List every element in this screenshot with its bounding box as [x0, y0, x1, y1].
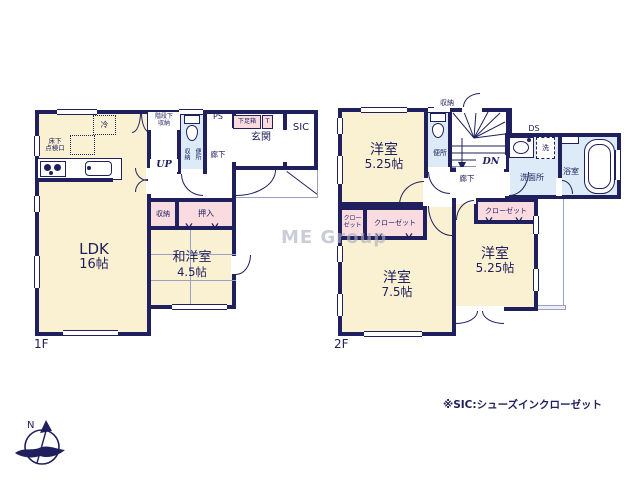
washitsu-size: 4.5帖 — [177, 266, 207, 279]
stove-burner — [54, 164, 61, 171]
ds-label: DS — [521, 123, 547, 134]
closet-mark: ∨ — [483, 216, 494, 224]
casement-arc-right — [482, 311, 504, 324]
up-label: UP — [150, 159, 178, 172]
toilet-tank — [184, 115, 200, 124]
bedroom-sw-size: 7.5帖 — [381, 286, 412, 300]
bedroom-se-name: 洋室 — [481, 246, 509, 262]
toilet-label-1f: 便所 — [192, 142, 201, 166]
hall-label-2f: 廊下 — [452, 174, 482, 185]
bedroom-nw-label: 洋室 5.25帖 — [350, 138, 418, 176]
bath-counter — [561, 136, 579, 144]
window — [337, 294, 343, 316]
door-opening — [231, 128, 237, 162]
bathroom-label: 浴室 — [556, 166, 586, 177]
stove-burner — [44, 164, 51, 171]
bedroom-sw-name: 洋室 — [383, 270, 411, 286]
floor-hatch-box — [70, 135, 95, 155]
window — [615, 150, 621, 180]
closet-mark: ∨ — [209, 222, 220, 230]
fridge-label: 冷 — [93, 115, 116, 135]
washitsu-label: 和洋室 4.5帖 — [158, 248, 226, 282]
stove-burner — [49, 171, 53, 175]
casement-arc-washitsu — [236, 255, 251, 275]
toilet-label-2f: 便所 — [424, 148, 456, 159]
toilet-storage-label: 収納 — [181, 142, 190, 166]
genkan-label: 玄関 — [240, 131, 282, 145]
window — [63, 330, 118, 336]
floor-hatch-label: 床下 点検口 — [40, 135, 70, 155]
faucet — [87, 166, 91, 170]
window — [34, 196, 40, 212]
watermark: ME Group — [281, 227, 387, 248]
washer-label: 洗 — [536, 137, 555, 159]
storage-opening — [462, 107, 482, 113]
ldk-name: LDK — [79, 241, 109, 258]
window — [337, 246, 343, 262]
window — [34, 256, 40, 288]
bedroom-se-label: 洋室 5.25帖 — [456, 242, 534, 280]
counter-edge — [37, 178, 113, 182]
ldk-size: 16帖 — [79, 258, 109, 273]
oshiire-label: 押入 — [184, 206, 228, 221]
shoe-t-label: T — [262, 115, 273, 129]
bathtub-inner — [588, 144, 611, 189]
shoe-box-label: 下足箱 — [233, 115, 261, 129]
closet-mark: ∨ — [513, 216, 524, 224]
closet-mark: ∨ — [183, 222, 194, 230]
sic-label: SIC — [286, 121, 316, 135]
bedroom-nw-size: 5.25帖 — [365, 158, 404, 172]
window — [172, 304, 227, 310]
bedroom-se-size: 5.25帖 — [476, 262, 515, 276]
balcony — [534, 196, 564, 310]
floor-plan-canvas: 冷 床下 点検口 収納 便所 階段下 収納 UP LDK 16帖 和洋室 4.5… — [0, 0, 640, 480]
bedroom-sw-label: 洋室 7.5帖 — [362, 266, 432, 304]
sic-note: ※SIC:シューズインクローゼット — [443, 397, 628, 413]
window — [364, 331, 422, 337]
floor2-label: 2F — [334, 337, 362, 352]
washitsu-name: 和洋室 — [172, 251, 211, 266]
floor1-label: 1F — [34, 337, 62, 352]
window — [337, 118, 343, 134]
toilet-tank — [430, 113, 446, 122]
hall-label-1f: 廊下 — [205, 150, 231, 161]
bedroom-nw-name: 洋室 — [370, 142, 398, 158]
window — [337, 156, 343, 184]
casement-arc-left — [456, 311, 478, 324]
ldk-label: LDK 16帖 — [58, 238, 130, 276]
compass: N — [10, 412, 74, 476]
storage-label-1f: 収納 — [149, 207, 177, 221]
door-arc-storage-2f — [463, 93, 480, 107]
washbasin-tap — [527, 138, 531, 142]
storage-label-2f: 収納 — [434, 98, 460, 108]
ps-label: PS — [205, 112, 231, 122]
under-stair-storage-label: 階段下 収納 — [148, 112, 180, 130]
window — [361, 107, 407, 113]
compass-north-label: N — [27, 420, 34, 431]
closet-mark: ∨ — [403, 232, 414, 240]
window — [57, 109, 97, 115]
washroom-label: 洗面所 — [503, 172, 561, 183]
washbasin-bowl — [513, 141, 529, 154]
